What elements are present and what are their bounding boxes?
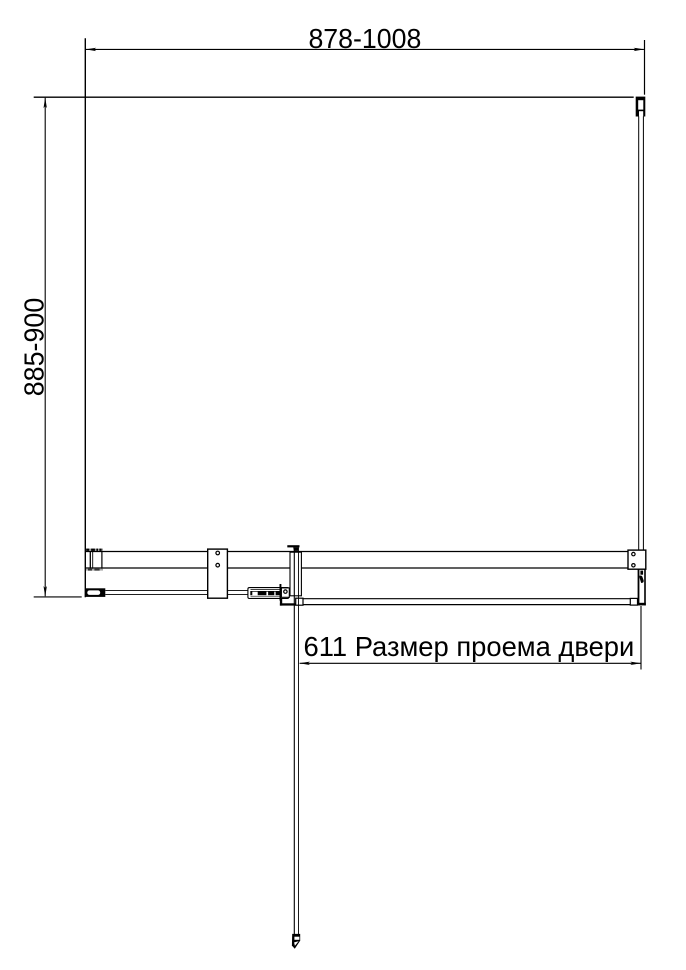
svg-text:878-1008: 878-1008 — [308, 23, 421, 54]
svg-text:611 Размер проема двери: 611 Размер проема двери — [304, 631, 635, 662]
svg-text:885-900: 885-900 — [19, 298, 50, 397]
